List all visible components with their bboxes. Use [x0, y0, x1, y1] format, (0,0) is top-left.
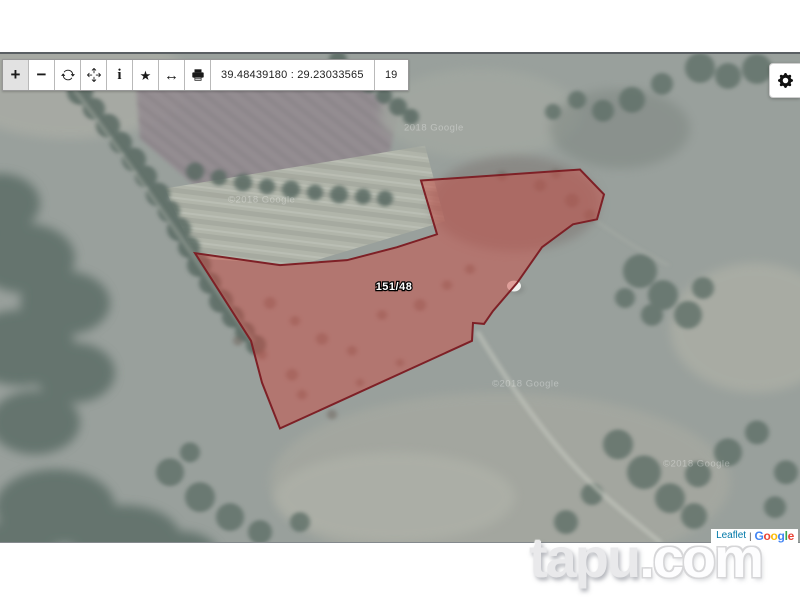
info-button[interactable]: i	[107, 60, 133, 90]
google-imagery-watermark: ©2018 Google	[492, 379, 559, 390]
zoom-level-display: 19	[375, 60, 408, 90]
zoom-in-button[interactable]: +	[3, 60, 29, 90]
minus-icon: −	[37, 66, 47, 83]
printer-icon	[191, 68, 205, 82]
left-right-arrow-icon: ↔	[164, 68, 179, 83]
coordinates-display: 39.48439180 : 29.23033565	[211, 60, 375, 90]
tapu-brand-text: tapu	[529, 526, 639, 589]
attribution-separator: |	[749, 532, 751, 541]
google-letter: o	[771, 529, 778, 543]
move-icon	[87, 68, 101, 82]
zoom-out-button[interactable]: −	[29, 60, 55, 90]
parcel-label: 151/48	[376, 281, 413, 293]
google-imagery-watermark: ©2018 Google	[228, 194, 295, 205]
google-letter: o	[763, 529, 770, 543]
map-viewport[interactable]: 151/48 ©2018 Google 2018 Google ©2018 Go…	[0, 52, 800, 543]
map-toolbar: + − i ★ ↔	[2, 59, 409, 91]
plus-icon: +	[11, 66, 21, 83]
google-imagery-watermark: 2018 Google	[404, 123, 464, 134]
move-button[interactable]	[81, 60, 107, 90]
leaflet-attribution-link[interactable]: Leaflet	[716, 531, 746, 541]
google-letter: g	[778, 529, 785, 543]
star-icon: ★	[140, 69, 152, 82]
google-attribution-logo[interactable]: Google	[754, 530, 794, 542]
print-button[interactable]	[185, 60, 211, 90]
info-icon: i	[117, 68, 121, 83]
refresh-icon	[61, 68, 75, 82]
settings-button[interactable]	[769, 63, 800, 98]
google-letter: e	[788, 529, 794, 543]
favorite-button[interactable]: ★	[133, 60, 159, 90]
satellite-imagery: 151/48 ©2018 Google 2018 Google ©2018 Go…	[0, 54, 800, 542]
gear-icon	[778, 73, 793, 88]
refresh-button[interactable]	[55, 60, 81, 90]
map-attribution: Leaflet | Google	[711, 529, 798, 543]
google-imagery-watermark: ©2018 Google	[663, 458, 730, 469]
measure-button[interactable]: ↔	[159, 60, 185, 90]
